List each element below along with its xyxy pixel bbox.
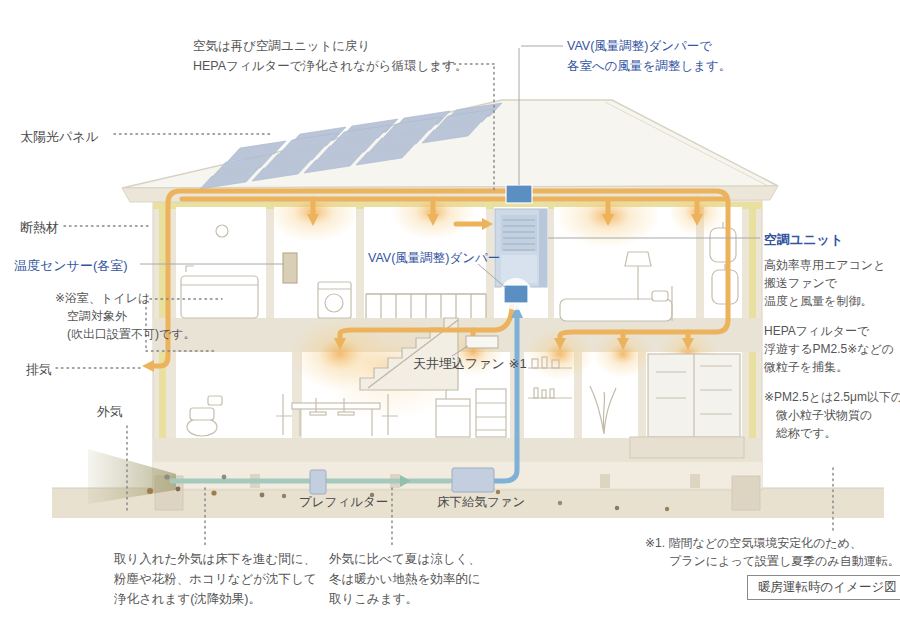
label-temp-sensor: 温度センサー(各室)	[14, 256, 128, 276]
vav-top-note: VAV(風量調整)ダンパーで 各室への風量を調整します。	[567, 36, 731, 76]
ac-unit-body1: 高効率専用エアコンと 搬送ファンで 温度と風量を制御。	[764, 256, 900, 310]
ac-unit-body2: HEPAフィルターで 浮遊するPM2.5※などの 微粒子を捕集。	[764, 322, 900, 376]
label-vav-mid: VAV(風量調整)ダンパー	[368, 249, 500, 268]
bottom-middle-note: 外気に比べて夏は涼しく、 冬は暖かい地熱を効率的に 取りこみます。	[329, 549, 481, 609]
prefilter-box	[310, 470, 326, 494]
roof	[122, 100, 778, 202]
label-insulation: 断熱材	[20, 218, 59, 238]
bottom-left-note: 取り入れた外気は床下を進む間に、 粉塵や花粉、ホコリなどが沈下して 浄化されます…	[114, 549, 317, 609]
circulation-note: 空気は再び空調ユニットに戻り HEPAフィルターで浄化されながら循環します。	[193, 36, 467, 76]
label-underfloor-fan: 床下給気ファン	[437, 493, 525, 512]
label-ceiling-fan: 天井埋込ファン ※1	[413, 354, 527, 374]
ac-unit	[495, 209, 547, 287]
label-solar-panel: 太陽光パネル	[20, 127, 99, 147]
vav-damper-top	[506, 185, 532, 203]
ac-unit-note: ※PM2.5とは2.5μm以下の 微小粒子状物質の 総称です。	[764, 388, 900, 442]
vav-damper-mid	[504, 285, 528, 303]
ac-unit-panel: 空調ユニット 高効率専用エアコンと 搬送ファンで 温度と風量を制御。 HEPAフ…	[764, 230, 900, 442]
ac-unit-title: 空調ユニット	[764, 230, 900, 250]
ceiling-fan-box	[466, 336, 498, 348]
note1-text: ※1. 階間などの空気環境安定化のため、 プランによって設置し夏季のみ自動運転。	[645, 534, 900, 570]
hvac-house-diagram: 空気は再び空調ユニットに戻り HEPAフィルターで浄化されながら循環します。 V…	[0, 0, 900, 626]
label-prefilter: プレフィルター	[299, 493, 388, 512]
label-outside-air: 外気	[97, 402, 123, 422]
bath-toilet-note: ※浴室、トイレは 空調対象外 (吹出口設置不可)です。	[55, 289, 196, 343]
caption-box: 暖房運転時のイメージ図	[747, 575, 900, 600]
underfloor-fan-box	[452, 468, 494, 492]
label-exhaust: 排気	[26, 360, 52, 380]
